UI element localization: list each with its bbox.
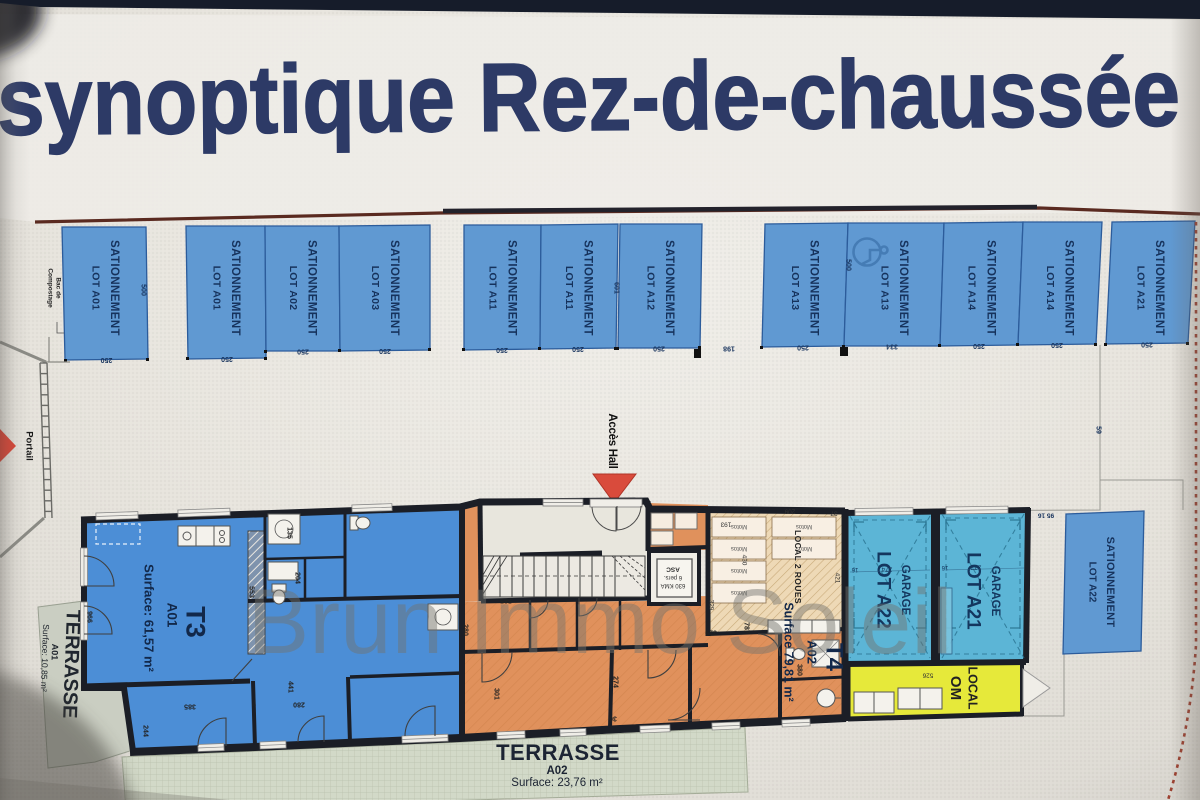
svg-text:LOT A14: LOT A14 [1044,266,1056,311]
svg-text:441: 441 [287,681,294,693]
svg-text:385: 385 [184,703,196,710]
svg-text:SATIONNEMENT: SATIONNEMENT [108,240,120,336]
svg-text:LOCAL: LOCAL [966,666,980,709]
svg-text:synoptique Rez-de-chaussée: synoptique Rez-de-chaussée [0,37,1180,155]
svg-text:95 16: 95 16 [1037,512,1054,519]
svg-text:LOT A14: LOT A14 [966,266,978,311]
svg-text:430: 430 [741,555,748,566]
svg-text:244: 244 [142,725,149,737]
svg-text:LOT A01: LOT A01 [90,266,102,311]
svg-text:59: 59 [1095,426,1102,434]
svg-text:7: 7 [252,699,256,706]
svg-text:30: 30 [609,715,617,722]
svg-text:SATIONNEMENT: SATIONNEMENT [1104,537,1116,628]
svg-text:Surface: 23,76 m²: Surface: 23,76 m² [511,777,603,789]
svg-text:16: 16 [941,564,948,570]
svg-text:966: 966 [86,611,93,623]
svg-text:334: 334 [886,343,898,350]
svg-text:250: 250 [221,355,233,362]
svg-text:SATIONNEMENT: SATIONNEMENT [305,240,317,336]
svg-text:SATIONNEMENT: SATIONNEMENT [663,240,675,336]
svg-text:Accès Hall: Accès Hall [606,413,618,468]
svg-text:A02: A02 [546,765,567,777]
svg-text:LOT A11: LOT A11 [487,266,499,310]
svg-text:301: 301 [493,688,500,700]
svg-text:250: 250 [1051,341,1063,348]
svg-text:LOT A13: LOT A13 [789,266,801,311]
svg-text:Surface: 61,57 m²: Surface: 61,57 m² [141,564,156,672]
svg-text:135: 135 [286,527,293,539]
svg-text:SATIONNEMENT: SATIONNEMENT [229,240,241,336]
svg-text:TERRASSE: TERRASSE [58,609,84,719]
svg-text:SATIONNEMENT: SATIONNEMENT [1063,240,1075,336]
svg-text:LOT A01: LOT A01 [211,266,223,311]
svg-text:274: 274 [612,676,619,688]
svg-text:T3: T3 [181,606,211,638]
svg-text:Compostage: Compostage [47,268,54,308]
svg-text:193: 193 [720,521,731,528]
svg-text:280: 280 [293,701,305,708]
svg-text:SATIONNEMENT: SATIONNEMENT [1153,240,1165,336]
svg-text:250: 250 [797,343,809,350]
svg-text:SATIONNEMENT: SATIONNEMENT [505,240,517,336]
svg-text:SATIONNEMENT: SATIONNEMENT [388,240,400,336]
svg-text:SATIONNEMENT: SATIONNEMENT [897,240,909,336]
svg-text:500: 500 [140,284,147,296]
svg-text:LOT A22: LOT A22 [1087,562,1098,603]
svg-text:250: 250 [297,348,309,355]
svg-text:Brun Immo Soleil: Brun Immo Soleil [248,571,953,673]
svg-text:601: 601 [613,282,620,294]
svg-text:OM: OM [947,676,964,700]
svg-text:250: 250 [653,345,665,352]
svg-text:250: 250 [973,342,985,349]
svg-text:250: 250 [496,346,508,353]
svg-text:Motos: Motos [731,523,747,529]
svg-text:LOT A02: LOT A02 [287,266,299,311]
svg-text:GARAGE: GARAGE [989,566,1001,617]
svg-text:LOT A12: LOT A12 [644,266,656,311]
svg-text:TERRASSE: TERRASSE [496,740,620,765]
svg-text:LOT A21: LOT A21 [1134,266,1146,311]
svg-text:37: 37 [830,510,838,517]
svg-text:SATIONNEMENT: SATIONNEMENT [582,240,594,336]
svg-text:Motos: Motos [731,545,747,551]
svg-text:250: 250 [379,347,391,354]
svg-text:SATIONNEMENT: SATIONNEMENT [808,240,820,336]
svg-text:250: 250 [572,345,584,352]
svg-text:LOT A11: LOT A11 [563,266,575,310]
svg-text:250: 250 [101,356,113,363]
svg-text:LOT A03: LOT A03 [369,266,381,311]
svg-text:198: 198 [723,345,735,352]
svg-text:209: 209 [784,508,795,515]
svg-text:Bac de: Bac de [55,277,62,299]
svg-text:277: 277 [970,564,981,571]
svg-text:250: 250 [1141,340,1153,347]
svg-text:Motos: Motos [796,523,812,529]
svg-text:LOT A13: LOT A13 [878,266,890,311]
svg-text:500: 500 [845,259,852,271]
svg-text:SATIONNEMENT: SATIONNEMENT [984,240,996,336]
svg-text:A01: A01 [164,603,179,628]
